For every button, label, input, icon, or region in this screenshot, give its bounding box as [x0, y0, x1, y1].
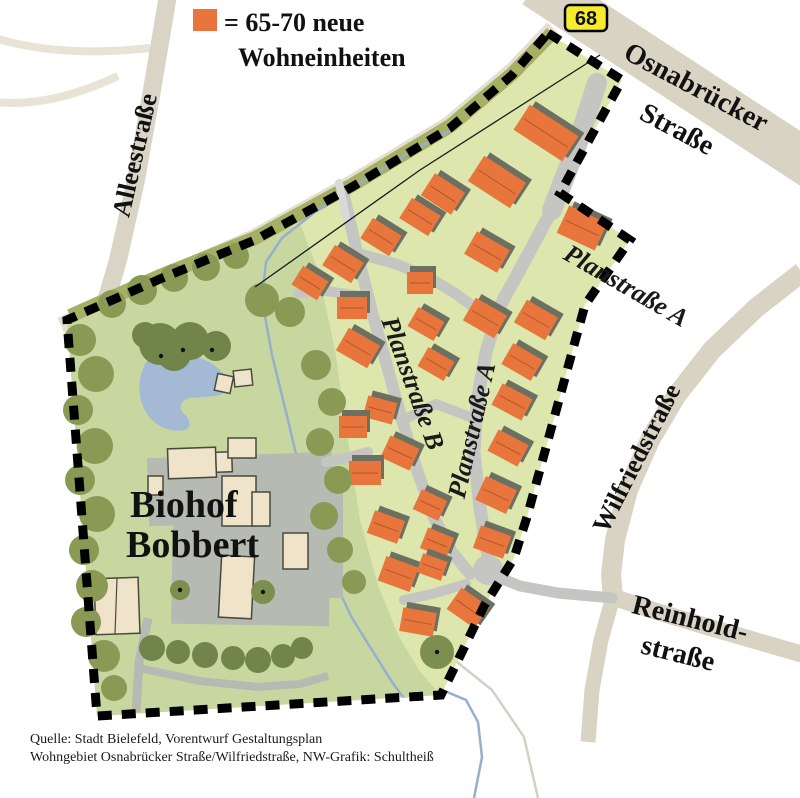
tree: [327, 537, 353, 563]
new-house: [407, 266, 436, 294]
label-bobbert: Bobbert: [126, 524, 259, 566]
new-house: [339, 410, 370, 438]
tree: [221, 646, 245, 670]
tree-trunk-dot: [210, 348, 214, 352]
farm-building: [167, 447, 216, 479]
plan-map: 68 = 65-70 neue Wohneinheiten Osnabrücke…: [0, 0, 800, 798]
garden-shed: [233, 369, 253, 387]
legend-line2: Wohneinheiten: [238, 43, 406, 72]
tree-trunk-dot: [261, 590, 265, 594]
farm-building: [228, 438, 256, 458]
new-house: [337, 291, 370, 319]
tree: [132, 322, 158, 348]
tree: [342, 570, 366, 594]
tree: [245, 283, 279, 317]
tree: [324, 466, 352, 494]
garden-shed: [214, 374, 233, 394]
tree-trunk-dot: [435, 650, 439, 654]
route-badge-number: 68: [575, 8, 597, 30]
label-biohof: Biohof: [130, 484, 239, 526]
tree: [166, 640, 190, 664]
farm-building: [252, 492, 270, 526]
tree: [245, 647, 271, 673]
tree: [306, 428, 334, 456]
legend-line1: = 65-70 neue: [224, 8, 364, 37]
new-house: [349, 455, 384, 485]
map-svg: 68 = 65-70 neue Wohneinheiten Osnabrücke…: [0, 0, 800, 798]
route-badge: 68: [565, 5, 607, 31]
tree-trunk-dot: [178, 588, 182, 592]
tree: [291, 637, 313, 659]
legend-swatch: [193, 9, 217, 31]
tree-trunk-dot: [181, 348, 185, 352]
source-line1: Quelle: Stadt Bielefeld, Vorentwurf Gest…: [30, 732, 322, 747]
tree: [310, 502, 338, 530]
tree: [201, 331, 231, 361]
source-line2: Wohngebiet Osnabrücker Straße/Wilfriedst…: [30, 750, 434, 765]
tree: [301, 350, 331, 380]
tree: [77, 428, 113, 464]
tree: [139, 635, 165, 661]
tree: [192, 642, 218, 668]
tree: [101, 675, 127, 701]
tree: [157, 337, 191, 371]
tree-trunk-dot: [159, 354, 163, 358]
tree: [78, 356, 114, 392]
tree: [318, 388, 346, 416]
farm-building: [283, 533, 308, 569]
tree: [275, 297, 305, 327]
